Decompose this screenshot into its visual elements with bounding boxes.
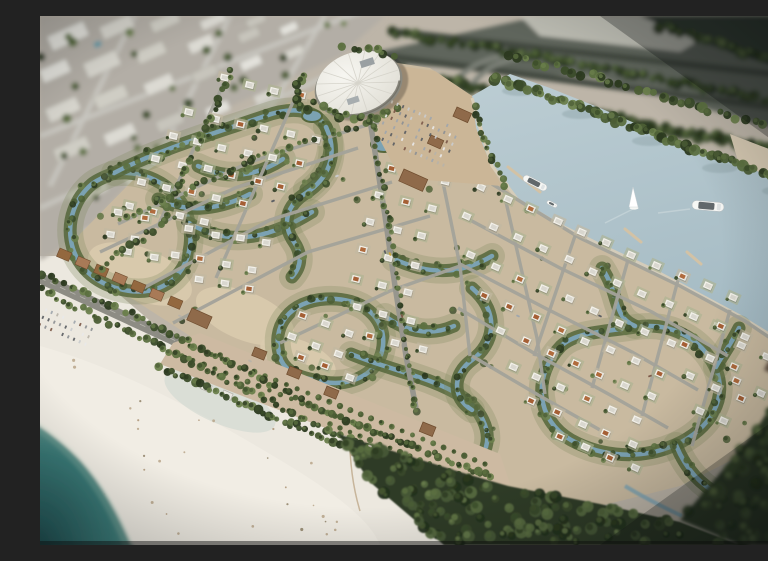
bottom-edge-strip — [40, 541, 768, 545]
aerial-render — [40, 16, 768, 545]
aerial-render-figure — [40, 16, 768, 545]
vignette-overlay — [40, 16, 768, 545]
